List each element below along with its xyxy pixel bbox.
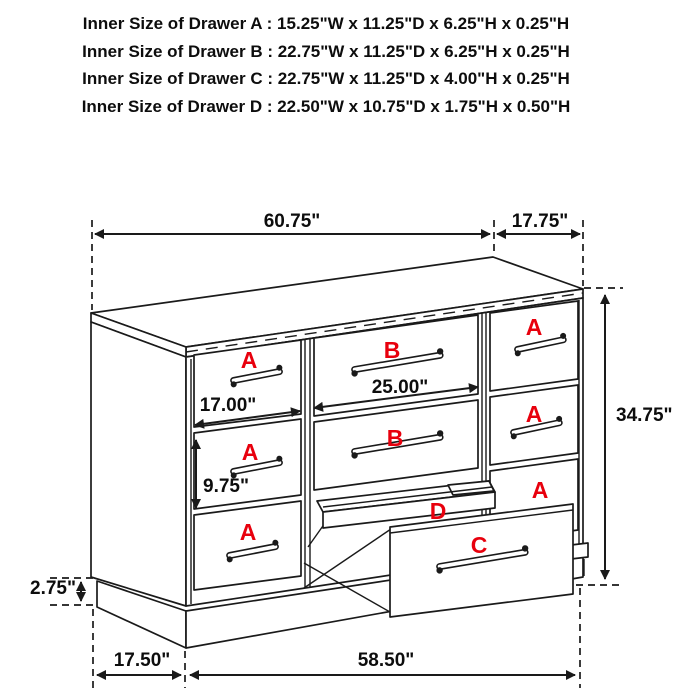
drawer-a-middle-right: A: [490, 385, 578, 465]
drawer-label-a: A: [526, 401, 543, 427]
dresser-cabinet: A A A B B A: [91, 257, 588, 648]
drawer-label-a: A: [532, 477, 549, 503]
drawer-label-b: B: [387, 425, 404, 451]
dim-base-height: 2.75": [30, 578, 97, 605]
drawer-front: [194, 501, 301, 590]
drawer-a-bottom-left: A: [194, 501, 301, 590]
drawer-label-a: A: [240, 519, 257, 545]
dim-label-drawer-a-height: 9.75": [203, 476, 249, 497]
dim-label-top-width: 60.75": [264, 211, 321, 232]
dim-label-base-front-width: 58.50": [358, 650, 415, 671]
dim-label-overall-height: 34.75": [616, 405, 673, 426]
drawer-label-b: B: [384, 337, 401, 363]
dresser-dimension-diagram: A A A B B A: [0, 0, 700, 700]
drawer-label-a: A: [242, 439, 259, 465]
dim-label-base-side-depth: 17.50": [114, 650, 171, 671]
dim-overall-height: 34.75": [576, 288, 673, 585]
drawer-label-a: A: [241, 347, 258, 373]
drawer-a-top-right: A: [490, 301, 578, 391]
drawer-label-c: C: [471, 532, 488, 558]
dim-label-drawer-a-width: 17.00": [200, 395, 257, 416]
drawer-label-a: A: [526, 314, 543, 340]
left-side-panel: [91, 322, 186, 606]
dim-label-drawer-b-width: 25.00": [372, 377, 429, 398]
dim-label-base-height: 2.75": [30, 578, 76, 599]
dim-label-top-depth: 17.75": [512, 211, 569, 232]
